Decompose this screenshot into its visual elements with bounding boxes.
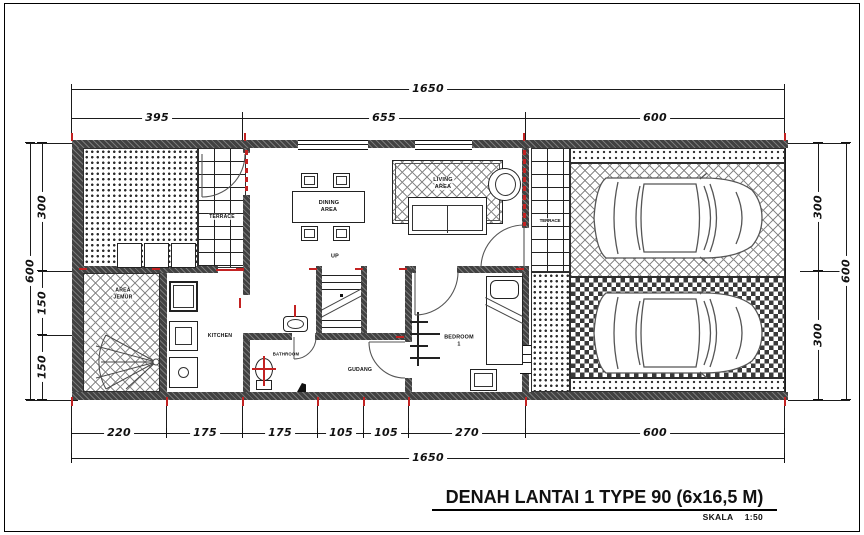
dim-tick [784,428,785,438]
spiral-stair [86,332,160,391]
stair-tread [322,320,361,321]
extension-line [71,84,72,140]
car-top-view [588,287,766,379]
round-chair [488,168,521,201]
dining-area-label: DININGAREA [319,200,339,214]
dim-label-bottom-total: 1650 [409,451,447,464]
red-mark [523,133,525,141]
kitchen-label: KITCHEN [207,333,233,340]
fixture-marker [252,368,276,370]
wall-jemur-kitchen [160,266,167,392]
window-bar [415,144,472,145]
red-dash-line [523,150,526,226]
dining-chair [333,226,350,241]
wall-bathroom-top [243,333,292,340]
bathroom-label: BATHROOM [273,351,300,356]
wall-corridor-bedroom [405,378,412,392]
extension-line [788,143,850,144]
stair-tread [322,282,361,283]
dining-table: DININGAREA [292,191,365,223]
garden-step-block [117,243,142,268]
area-jemur-label: AREAJEMUR [112,288,133,301]
bedside-table [470,369,497,391]
scale-value: 1:50 [745,512,763,522]
title-block: DENAH LANTAI 1 TYPE 90 (6x16,5 M) SKALA … [432,487,777,522]
wall-living-carport [522,268,529,345]
living-area-label: LIVINGAREA [432,177,454,191]
dim-label: 270 [452,426,482,439]
wardrobe-symbol [408,310,442,370]
dining-chair [301,173,318,188]
red-mark [152,268,160,270]
wall-gudang-top [315,333,405,340]
dim-label: 175 [265,426,295,439]
dim-line-top-segments [72,118,785,119]
red-mark [71,397,73,406]
wall-living-carport [522,372,529,392]
terrace-left-label: TERRACE [208,214,236,220]
living-front-window [415,140,472,150]
red-mark [309,268,317,270]
sofa [408,197,487,235]
refrigerator [169,281,198,312]
dim-label: 395 [142,111,172,124]
extension-line [784,84,785,140]
gudang-door-swing [367,340,407,380]
scale-label: SKALA [703,512,733,522]
stair-tread [322,275,361,276]
dim-tick [317,428,318,438]
dim-label: 600 [640,111,670,124]
extension-line [788,400,850,401]
dim-label-top-total: 1650 [409,82,447,95]
dim-label: 600 [640,426,670,439]
kitchen-sink-unit [169,357,198,388]
carport-border-strip-top [570,148,785,163]
red-mark [408,397,410,406]
stove [169,321,198,351]
red-mark [784,397,786,406]
floor-plan-sheet: 1650 395 655 600 220 175 175 105 105 270… [0,0,864,535]
car-top-view [588,172,766,264]
dim-label: 300 [36,192,49,222]
stairs-up-label: UP [331,254,339,261]
extension-line [242,112,243,140]
dim-tick [408,428,409,438]
dim-label: 300 [812,320,825,350]
red-mark [516,268,524,270]
red-mark [355,268,363,270]
dim-tick [525,428,526,438]
dining-front-window [298,140,368,150]
red-mark [216,269,244,271]
drawing-title: DENAH LANTAI 1 TYPE 90 (6x16,5 M) [432,487,777,511]
dim-label: 175 [190,426,220,439]
dim-line-bottom-segments [72,433,785,434]
dining-chair [333,173,350,188]
wall-left [72,148,83,392]
dim-tick [71,428,72,438]
wall-kitchen-bath [243,266,250,295]
dim-tick [71,453,72,463]
dim-label-right-total: 600 [840,256,853,286]
garden-step-block [144,243,169,268]
dining-chair [301,226,318,241]
scale-row: SKALA 1:50 [432,512,777,522]
living-side-door-swing [479,223,527,271]
red-mark [79,268,87,270]
red-mark [363,397,365,406]
terrace-right-floor [531,148,570,272]
front-door-swing [198,150,250,200]
wall-kitchen-bath [243,335,250,392]
stair-nosing-dot [340,294,343,297]
gudang-label: GUDANG [348,367,372,374]
dim-label: 150 [36,352,49,382]
property-line-right [785,140,786,400]
wash-basin [283,316,308,332]
dim-tick [784,453,785,463]
dim-label: 300 [812,192,825,222]
garden-step-block [171,243,196,268]
red-mark [396,336,404,338]
extension-line [26,143,78,144]
red-mark [242,397,244,406]
dim-tick [166,428,167,438]
fixture-marker [294,305,296,317]
stair-tread [322,289,361,290]
bedroom-label: BEDROOM1 [444,334,474,348]
dim-label: 150 [36,288,49,318]
carport-border-strip-bottom [570,378,785,392]
red-mark [166,397,168,406]
red-mark [525,397,527,406]
dim-tick [242,428,243,438]
bedroom-door-swing [413,270,460,317]
red-dash-line [245,150,248,194]
wall-stairs-right [361,266,367,337]
red-mark [399,268,407,270]
red-mark [244,133,246,141]
extension-line [525,112,526,140]
red-mark [317,397,319,406]
wall-terrace-dining [243,195,250,266]
dim-label: 105 [371,426,401,439]
dim-tick [363,428,364,438]
terrace-right-label: TERRACE [539,218,562,224]
pillow [490,280,519,299]
stair-tread [322,327,361,328]
bathroom-door-swing [292,335,318,361]
window-bar [298,144,368,145]
dim-label: 655 [369,111,399,124]
dim-label: 105 [326,426,356,439]
side-garden-paving [531,272,570,392]
dim-label-left-total: 600 [24,256,37,286]
red-mark [71,133,73,141]
fixture-marker [263,356,265,386]
red-mark [784,133,786,141]
wall-back [72,392,788,400]
red-mark [239,298,241,308]
dim-label: 220 [104,426,134,439]
